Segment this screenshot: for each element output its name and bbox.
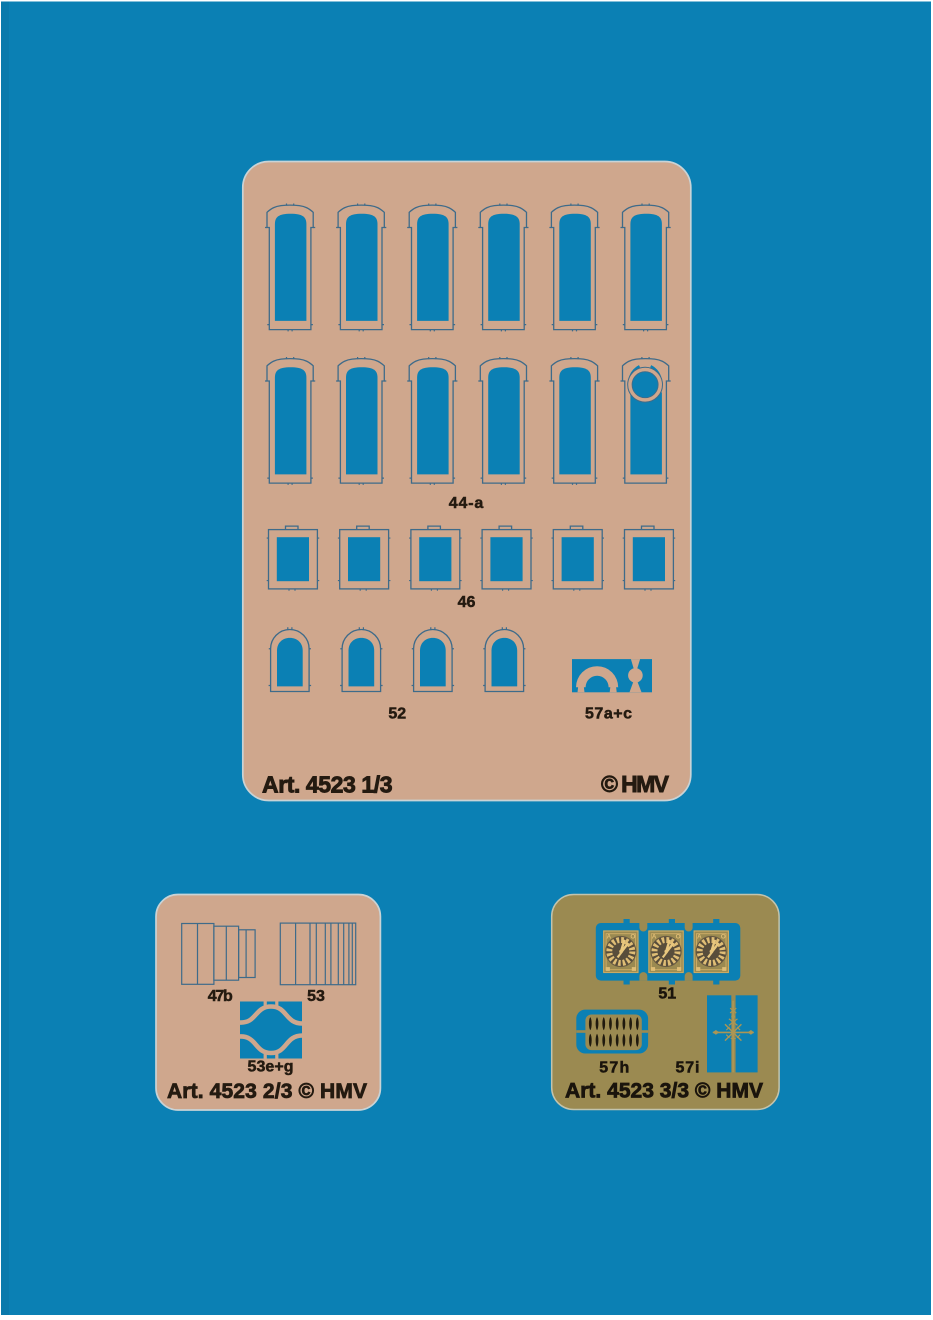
svg-text:Art. 4523 1/3: Art. 4523 1/3 [262, 772, 393, 798]
svg-text:Art. 4523 3/3 © HMV: Art. 4523 3/3 © HMV [565, 1080, 763, 1103]
svg-text:© HMV: © HMV [601, 771, 670, 797]
svg-text:44-a: 44-a [449, 495, 484, 512]
svg-text:57i: 57i [676, 1059, 700, 1076]
svg-text:51: 51 [658, 985, 676, 1002]
svg-text:53e+g: 53e+g [248, 1059, 294, 1076]
svg-text:53: 53 [307, 988, 325, 1005]
svg-text:57h: 57h [599, 1059, 629, 1076]
svg-text:52: 52 [388, 706, 406, 723]
svg-text:47b: 47b [208, 988, 233, 1005]
svg-text:57a+c: 57a+c [585, 706, 632, 723]
svg-text:Art. 4523 2/3 © HMV: Art. 4523 2/3 © HMV [167, 1080, 367, 1103]
svg-text:46: 46 [458, 594, 476, 611]
